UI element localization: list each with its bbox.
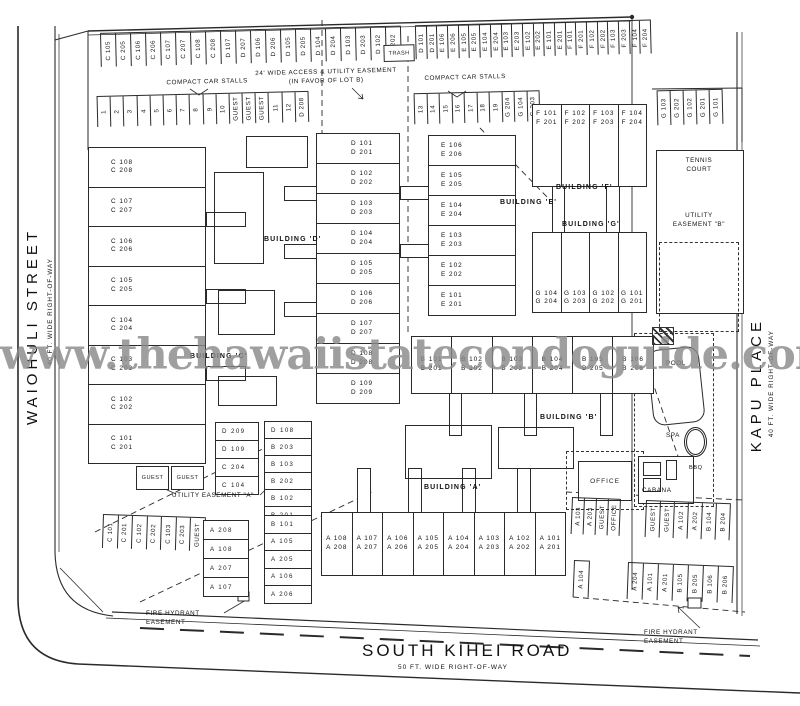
stall-label: C 103	[164, 524, 172, 544]
unit-label: D 107 D 207	[317, 320, 373, 337]
stall-label: C 106	[135, 40, 142, 60]
parking-stall: B 104	[701, 503, 716, 540]
unit-label: C 101 C 201	[89, 435, 133, 452]
parking-stall: C 203	[174, 517, 190, 550]
street-name-south-kihei: SOUTH KIHEI ROAD	[362, 641, 572, 661]
parking-stall: E 206	[447, 25, 458, 58]
stall-column-2: D 108B 203B 103B 202B 102B 201	[264, 421, 312, 524]
unit-label: G 104 G 204	[536, 290, 558, 307]
unit: C 101 C 201	[88, 424, 206, 465]
parking-stall: G 102	[683, 90, 697, 124]
parking-stall: E 205	[468, 25, 479, 58]
unit-label: D 108 D 208	[317, 350, 373, 367]
stall-label: F 101	[567, 29, 574, 48]
unit-label: C 105 C 205	[89, 277, 133, 294]
parking-stall: 7	[176, 95, 190, 125]
unit: C 103 C 203	[88, 345, 206, 386]
stall-label: GUEST	[245, 96, 253, 120]
parking-stall: C 103	[160, 517, 176, 550]
parking-stall: B 204	[715, 504, 731, 541]
stall-label: E 101	[546, 30, 553, 49]
unit-label: E 101 E 201	[429, 292, 463, 309]
parking-stall: F 104	[629, 21, 640, 54]
parking-stall: F 204	[639, 20, 651, 53]
parking-stall: F 202	[597, 22, 608, 55]
parking-stall: D 104	[310, 28, 326, 61]
parking-stall: D 205	[295, 29, 311, 62]
parking-stall: 14	[426, 94, 439, 124]
parking-stall: A 101	[642, 564, 658, 601]
fire-hydrant-easement-label-west: FIRE HYDRANT EASEMENT	[146, 609, 200, 627]
stall-label: E 206	[449, 32, 456, 51]
unit: A 108 A 208	[321, 512, 353, 576]
unit: D 103 D 203	[316, 193, 400, 224]
stall-label: 10	[219, 105, 226, 113]
stall-label: F 201	[578, 29, 585, 48]
unit-label: C 104 C 204	[89, 317, 133, 334]
site-plan: C 105C 205C 106C 206C 107C 207C 108C 208…	[0, 0, 800, 706]
unit-label: A 102 A 202	[509, 535, 530, 552]
stall-label: A 208	[210, 527, 233, 534]
fire-hydrant-easement-label-east: FIRE HYDRANT EASEMENT	[644, 628, 698, 646]
stall-label: B 205	[691, 574, 699, 593]
stall-label: B 102	[271, 495, 294, 502]
unit: F 101 F 201	[532, 104, 562, 187]
unit-label: D 103 D 203	[317, 200, 373, 217]
stall-label: C 201	[121, 522, 129, 542]
stall-label: D 101	[417, 33, 424, 53]
stall-label: A 103	[574, 507, 582, 526]
unit: B 106 B 206	[612, 336, 653, 394]
stall-column-1: D 209D 109C 204C 104	[215, 422, 259, 495]
parking-stall: C 105	[100, 34, 116, 67]
unit: C 104 C 204	[88, 305, 206, 346]
parking-stall: B 205	[687, 565, 703, 602]
parking-stall: D 106	[250, 30, 266, 63]
parking-stall: E 105	[458, 25, 469, 58]
stall-label: A 203	[586, 507, 594, 526]
parking-stall: C 205	[115, 33, 131, 66]
building-b: B 101 B 201B 102 B 202B 103 B 203B 104 B…	[412, 336, 654, 392]
stall-label: B 101	[271, 521, 294, 528]
building-f-label: BUILDING 'F'	[556, 184, 613, 191]
parking-stall: 5	[149, 95, 163, 125]
stall-label: A 108	[210, 546, 233, 553]
stall-label: E 103	[503, 31, 510, 50]
stall-column-3: B 101A 105A 205A 106A 206	[264, 515, 312, 604]
stall-label: OFFICE	[610, 504, 618, 531]
stall-label: 12	[285, 103, 292, 111]
unit-label: E 105 E 205	[429, 172, 463, 189]
unit-label: G 102 G 202	[593, 290, 615, 307]
parking-stall: 16	[451, 93, 464, 123]
unit-label: B 102 B 202	[461, 356, 483, 373]
unit: D 102 D 202	[316, 163, 400, 194]
building-c-label: BUILDING 'C'	[190, 353, 247, 360]
unit: C 105 C 205	[88, 266, 206, 307]
parking-stall: G 104	[514, 92, 527, 122]
unit: A 105 A 205	[413, 512, 445, 576]
parking-row-north-outer-east: D 101D 201E 106E 206E 105E 205E 104E 204…	[415, 19, 652, 59]
parking-stall: B 202	[265, 473, 311, 490]
parking-stall: C 208	[205, 31, 221, 64]
guest-stall: GUEST	[136, 466, 169, 490]
unit: G 104 G 204	[532, 232, 562, 313]
stall-label: F 203	[620, 28, 627, 47]
unit-label: B 104 B 204	[542, 356, 564, 373]
unit: B 102 B 202	[451, 336, 492, 394]
parking-stall: 10	[215, 94, 229, 124]
parking-stall: D 108	[265, 422, 311, 439]
street-row-south-kihei: 50 FT. WIDE RIGHT-OF-WAY	[398, 664, 508, 671]
parking-stall: D 203	[355, 27, 371, 60]
stall-label: D 109	[222, 446, 246, 453]
parking-stall: 18	[476, 92, 489, 122]
unit-label: B 101 B 201	[421, 356, 443, 373]
unit: C 107 C 207	[88, 187, 206, 228]
parking-stall: E 201	[554, 23, 565, 56]
parking-stall: E 104	[479, 24, 490, 57]
parking-stall: C 207	[175, 32, 191, 65]
stall-label: C 204	[222, 464, 246, 471]
parking-stall: E 204	[490, 24, 501, 57]
unit-label: F 101 F 201	[536, 110, 557, 127]
parking-stall: D 101	[415, 26, 426, 59]
unit: D 105 D 205	[316, 253, 400, 284]
parking-stall: 2	[110, 96, 124, 126]
stall-label: C 105	[105, 40, 112, 60]
unit-label: F 103 F 203	[593, 110, 614, 127]
parking-stall: GUEST	[255, 93, 269, 123]
gate-hatch	[652, 327, 674, 345]
parking-stall: A 205	[265, 551, 311, 569]
parking-stall: F 203	[618, 21, 629, 54]
building-a: A 108 A 208A 107 A 207A 106 A 206A 105 A…	[322, 512, 566, 574]
parking-stall: G 201	[696, 90, 710, 124]
utility-easement-a-label: UTILITY EASEMENT "A"	[172, 491, 254, 500]
parking-stall: E 106	[436, 25, 447, 58]
building-d-label: BUILDING 'D'	[264, 236, 321, 243]
stall-label: F 202	[599, 29, 606, 48]
unit: D 107 D 207	[316, 313, 400, 344]
parking-row-northeast: G 103G 202G 102G 201G 101	[657, 89, 724, 126]
stall-label: C 205	[120, 40, 127, 60]
stall-label: A 102	[677, 511, 685, 530]
stall-label: D 106	[255, 37, 262, 57]
stall-label: A 101	[646, 572, 654, 591]
unit: A 103 A 203	[474, 512, 506, 576]
parking-stall: B 102	[265, 490, 311, 507]
utility-easement-b-label: UTILITY EASEMENT "B"	[664, 211, 734, 229]
stall-label: 5	[153, 108, 160, 112]
parking-stall: B 206	[717, 566, 734, 603]
parking-row-north-outer-west: C 105C 205C 106C 206C 107C 207C 108C 208…	[100, 26, 402, 67]
unit: C 102 C 202	[88, 384, 206, 425]
parking-stall: 3	[123, 96, 137, 126]
unit-label: A 101 A 201	[540, 535, 561, 552]
guest-stall: GUEST	[171, 466, 204, 490]
stall-label: G 103	[660, 98, 667, 118]
parking-stall: 17	[464, 93, 477, 123]
building-d: D 101 D 201D 102 D 202D 103 D 203D 104 D…	[316, 134, 400, 404]
stall-label: D 207	[240, 37, 247, 57]
unit: A 101 A 201	[535, 512, 567, 576]
bbq-label: BBQ	[689, 464, 703, 472]
unit-label: C 106 C 206	[89, 238, 133, 255]
unit-label: A 107 A 207	[357, 535, 378, 552]
parking-stall: 4	[136, 96, 150, 126]
parking-stall: A 201	[657, 564, 673, 601]
stall-label: A 205	[271, 556, 294, 563]
unit-label: C 108 C 208	[89, 159, 133, 176]
parking-stall: D 208	[294, 92, 309, 122]
building-e: E 106 E 206E 105 E 205E 104 E 204E 103 E…	[428, 136, 516, 316]
stall-label: F 102	[588, 29, 595, 48]
parking-stall: A 107	[204, 578, 248, 596]
stall-label: 11	[272, 104, 279, 112]
stall-label: 9	[206, 107, 213, 111]
stall-label: A 107	[210, 584, 233, 591]
unit: A 104 A 204	[443, 512, 475, 576]
unit: C 108 C 208	[88, 147, 206, 188]
stall-label: 4	[140, 109, 147, 113]
stall-label: D 105	[285, 36, 292, 56]
stall-label: D 206	[270, 36, 277, 56]
unit: D 104 D 204	[316, 223, 400, 254]
unit-label: D 102 D 202	[317, 170, 373, 187]
unit-label: D 105 D 205	[317, 260, 373, 277]
unit: D 108 D 208	[316, 343, 400, 374]
stall-label: 7	[180, 108, 187, 112]
parking-stall: E 103	[500, 24, 511, 57]
parking-stall: A 202	[687, 503, 702, 540]
stall-label: F 104	[631, 28, 638, 47]
unit-label: D 104 D 204	[317, 230, 373, 247]
parking-stall: E 102	[522, 23, 533, 56]
parking-stall: B 105	[672, 565, 688, 602]
parking-stall: 11	[268, 93, 282, 123]
stall-label: 13	[417, 105, 424, 113]
unit: D 109 D 209	[316, 373, 400, 404]
parking-stall: A 105	[265, 534, 311, 552]
stall-label: 8	[193, 107, 200, 111]
stall-label: D 205	[300, 36, 307, 56]
unit-label: C 107 C 207	[89, 198, 133, 215]
stall-label: G 202	[673, 98, 680, 118]
parking-row-southeast-1a: A 103A 203GUESTOFFICE	[571, 497, 621, 536]
stall-label: E 104	[482, 31, 489, 50]
parking-stall: D 109	[216, 441, 258, 459]
office: OFFICE	[578, 461, 632, 501]
stall-label: D 204	[330, 35, 337, 55]
parking-stall: 1	[97, 97, 111, 127]
stall-label: G 201	[699, 97, 706, 117]
unit-label: A 108 A 208	[326, 535, 347, 552]
stall-label: C 108	[195, 38, 202, 58]
parking-stall: E 101	[543, 23, 554, 56]
parking-stall: A 106	[265, 569, 311, 587]
parking-stall: 13	[414, 94, 427, 124]
unit: E 101 E 201	[428, 285, 516, 316]
parking-stall: G 202	[670, 91, 684, 125]
parking-row-north-inner-west: 12345678910GUESTGUESTGUEST1112D 208	[97, 91, 310, 127]
stall-label: A 105	[271, 538, 294, 545]
parking-stall: 19	[489, 92, 502, 122]
stall-label: G 104	[517, 97, 524, 117]
building-g-label: BUILDING 'G'	[562, 221, 620, 228]
parking-stall: 8	[189, 94, 203, 124]
stall-label: A 206	[271, 591, 294, 598]
unit: B 103 B 203	[492, 336, 533, 394]
stall-label: D 104	[315, 35, 322, 55]
unit-label: D 106 D 206	[317, 290, 373, 307]
building-e-label: BUILDING 'E'	[500, 199, 557, 206]
stall-label: E 102	[524, 30, 531, 49]
parking-stall: 6	[162, 95, 176, 125]
parking-stall: C 202	[145, 516, 161, 549]
building-f: F 101 F 201F 102 F 202F 103 F 203F 104 F…	[533, 104, 647, 180]
unit-label: E 106 E 206	[429, 142, 463, 159]
unit-label: G 101 G 201	[621, 290, 643, 307]
building-a-label: BUILDING 'A'	[424, 484, 481, 491]
unit: D 106 D 206	[316, 283, 400, 314]
stall-label: GUEST	[232, 96, 240, 120]
unit-label: B 106 B 206	[622, 356, 644, 373]
parking-stall: F 103	[607, 21, 618, 54]
stall-label: C 202	[150, 523, 158, 543]
street-row-waiohuli: 40 FT. WIDE RIGHT-OF-WAY	[47, 258, 54, 365]
stall-label: B 105	[676, 573, 684, 592]
stall-label: E 204	[492, 31, 499, 50]
stall-label: A 106	[271, 573, 294, 580]
unit: G 103 G 203	[561, 232, 591, 313]
parking-stall: D 206	[265, 30, 281, 63]
stall-label: GUEST	[258, 96, 266, 120]
parking-stall: A 104	[573, 561, 590, 598]
unit: F 102 F 202	[561, 104, 591, 187]
stall-label: B 206	[721, 575, 729, 594]
stall-column-4: A 208A 108A 207A 107	[203, 520, 249, 597]
parking-stall: C 206	[145, 32, 161, 65]
unit-label: E 103 E 203	[429, 232, 463, 249]
parking-stall: B 106	[702, 566, 718, 603]
unit-label: E 104 E 204	[429, 202, 463, 219]
parking-stall: A 208	[204, 521, 248, 540]
parking-stall: B 103	[265, 456, 311, 473]
compact-car-stalls-label-west: COMPACT CAR STALLS	[161, 76, 253, 87]
parking-stall: GUEST	[659, 502, 674, 539]
parking-stall: GUEST	[228, 93, 242, 123]
trash-label: TRASH	[389, 50, 410, 57]
parking-stall: B 203	[265, 439, 311, 456]
parking-stall: F 101	[565, 22, 576, 55]
parking-stall: C 102	[131, 516, 147, 549]
unit: A 106 A 206	[382, 512, 414, 576]
compact-car-stalls-label-east: COMPACT CAR STALLS	[419, 72, 511, 83]
unit-label: A 104 A 204	[448, 535, 469, 552]
unit: B 105 B 205	[572, 336, 613, 394]
parking-stall: C 107	[160, 32, 176, 65]
stall-label: C 208	[210, 38, 217, 58]
unit-label: C 102 C 202	[89, 396, 133, 413]
parking-stall: A 102	[673, 502, 688, 539]
spa	[684, 427, 707, 457]
stall-label: 19	[492, 103, 499, 111]
parking-row-southeast-2b: A 204A 101A 201B 105B 205B 106B 206	[627, 562, 734, 603]
parking-stall: G 103	[657, 91, 671, 125]
stall-label: GUEST	[177, 475, 199, 481]
unit-label: F 102 F 202	[565, 110, 586, 127]
parking-stall: C 204	[216, 459, 258, 477]
stall-label: A 204	[631, 572, 639, 591]
unit: G 102 G 202	[589, 232, 619, 313]
parking-row-southwest: C 101C 201C 102C 202C 103C 203GUEST	[102, 514, 206, 551]
unit: B 104 B 204	[532, 336, 573, 394]
stall-label: B 103	[271, 461, 294, 468]
parking-stall: C 201	[116, 515, 132, 548]
stall-label: D 103	[345, 35, 352, 55]
parking-stall: GUEST	[645, 501, 660, 538]
unit: C 106 C 206	[88, 226, 206, 267]
parking-stall: G 101	[709, 90, 724, 124]
building-b-label: BUILDING 'B'	[540, 414, 597, 421]
stall-label: A 201	[661, 573, 669, 592]
stall-label: D 108	[271, 427, 295, 434]
parking-stall: D 201	[426, 26, 437, 59]
stall-label: C 102	[135, 523, 143, 543]
stall-label: E 105	[460, 32, 467, 51]
parking-row-southeast-2a: A 104	[573, 560, 590, 598]
stall-label: D 102	[375, 34, 382, 54]
stall-label: 17	[467, 104, 474, 112]
pool-label: POOL	[666, 359, 686, 368]
parking-stall: 9	[202, 94, 216, 124]
stall-label: F 103	[610, 28, 617, 47]
parking-stall: D 204	[325, 28, 341, 61]
trash-enclosure: TRASH	[383, 44, 414, 62]
parking-stall: A 204	[627, 563, 643, 600]
parking-stall: D 105	[280, 29, 296, 62]
unit-label: B 105 B 205	[582, 356, 604, 373]
stall-label: A 207	[210, 565, 233, 572]
stall-label: D 208	[298, 97, 305, 117]
cabana-label: CABANA	[642, 486, 672, 495]
stall-label: 3	[127, 109, 134, 113]
unit-label: A 103 A 203	[479, 535, 500, 552]
stall-label: 16	[455, 104, 462, 112]
stall-label: 6	[166, 108, 173, 112]
stall-label: C 203	[179, 524, 187, 544]
unit: E 105 E 205	[428, 165, 516, 196]
parking-stall: D 103	[340, 28, 356, 61]
stall-label: GUEST	[598, 505, 606, 530]
parking-stall: A 207	[204, 559, 248, 578]
stall-label: B 202	[271, 478, 294, 485]
parking-stall: 12	[281, 92, 295, 122]
stall-label: GUEST	[193, 522, 201, 547]
stall-label: GUEST	[649, 507, 657, 532]
parking-stall: F 102	[586, 22, 597, 55]
stall-label: D 201	[428, 32, 435, 52]
unit-label: B 103 B 203	[501, 356, 523, 373]
unit-label: C 103 C 203	[89, 356, 133, 373]
stall-label: G 204	[504, 97, 511, 117]
unit-label: D 101 D 201	[317, 140, 373, 157]
stall-label: GUEST	[663, 508, 671, 533]
street-name-waiohuli: WAIOHULI STREET	[24, 228, 41, 425]
stall-label: G 101	[712, 97, 719, 117]
parking-stall: C 108	[190, 31, 206, 64]
